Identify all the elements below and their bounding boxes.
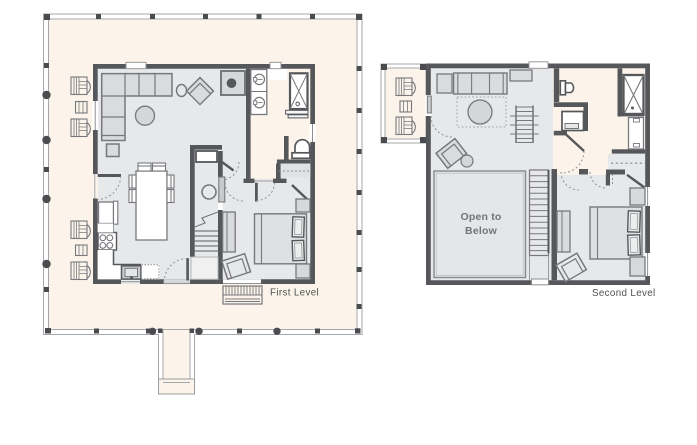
- svg-text:First Level: First Level: [270, 288, 319, 299]
- svg-text:Open to: Open to: [460, 211, 501, 223]
- svg-text:Second Level: Second Level: [592, 288, 656, 299]
- svg-text:Below: Below: [465, 225, 498, 237]
